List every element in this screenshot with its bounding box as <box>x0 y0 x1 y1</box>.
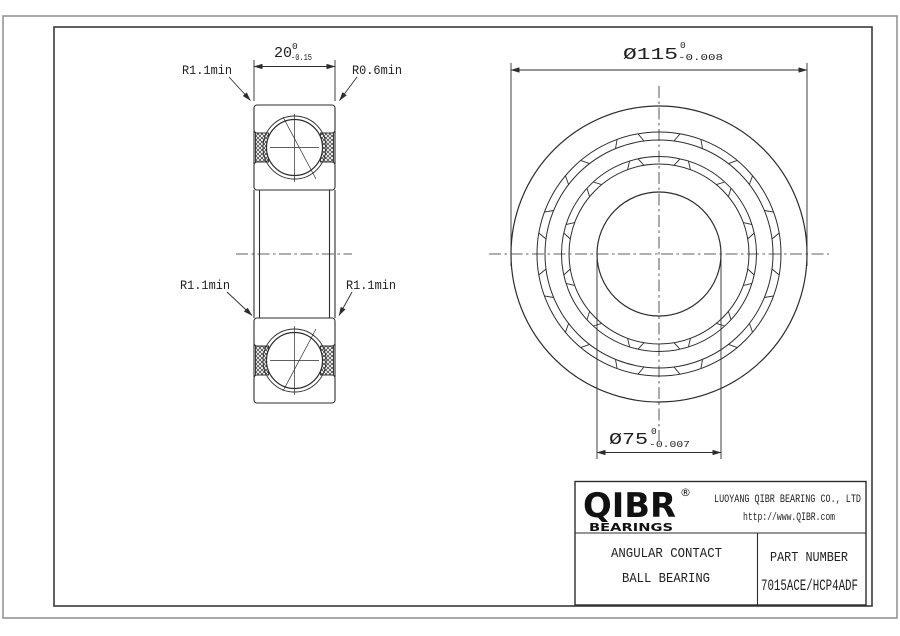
bearing-drawing: 20 0 -0.15 R1.1min R0.6min R1.1min R1.1m… <box>0 0 900 636</box>
title-block: QIBR ® BEARINGS LUOYANG QIBR BEARING CO.… <box>575 482 866 606</box>
product-name-line1: ANGULAR CONTACT <box>611 546 722 562</box>
bearing-section-top <box>254 105 335 190</box>
callout-mid-right: R1.1min <box>346 278 396 293</box>
od-tol-upper: 0 <box>680 40 686 51</box>
part-number-value: 7015ACE/HCP4ADF <box>761 577 858 595</box>
front-view: Ø115 0 -0.008 Ø75 0 -0.007 <box>489 40 829 459</box>
width-dimension: 20 0 -0.15 <box>254 41 335 101</box>
width-tol-upper: 0 <box>292 41 298 52</box>
leader-mid-left <box>227 292 252 316</box>
width-tol-lower: -0.15 <box>291 52 312 63</box>
drawing-page: 20 0 -0.15 R1.1min R0.6min R1.1min R1.1m… <box>0 0 900 636</box>
leader-mid-right <box>339 292 352 316</box>
logo-sub-text: BEARINGS <box>589 522 673 534</box>
od-value: Ø115 <box>623 46 678 65</box>
callout-top-right: R0.6min <box>352 63 402 78</box>
width-value: 20 <box>274 45 292 62</box>
company-website: http://www.QIBR.com <box>743 512 835 524</box>
callout-mid-left: R1.1min <box>180 278 230 293</box>
bore-tol-upper: 0 <box>651 426 657 437</box>
callout-top-left: R1.1min <box>182 63 232 78</box>
logo-text: QIBR <box>583 486 676 526</box>
od-tol-lower: -0.008 <box>678 52 723 63</box>
qibr-logo: QIBR ® BEARINGS <box>583 486 691 534</box>
section-view: 20 0 -0.15 R1.1min R0.6min R1.1min R1.1m… <box>180 41 402 403</box>
bore-value: Ø75 <box>609 431 648 450</box>
product-name-line2: BALL BEARING <box>622 571 710 587</box>
leader-top-right <box>340 77 358 101</box>
bore-tol-lower: -0.007 <box>649 439 690 450</box>
part-number-label: PART NUMBER <box>770 550 848 566</box>
bearing-section-bottom <box>254 318 335 403</box>
leader-top-left <box>229 77 251 101</box>
radius-callouts: R1.1min R0.6min R1.1min R1.1min <box>180 63 402 316</box>
company-name: LUOYANG QIBR BEARING CO., LTD <box>714 494 861 506</box>
registered-icon: ® <box>680 486 691 499</box>
